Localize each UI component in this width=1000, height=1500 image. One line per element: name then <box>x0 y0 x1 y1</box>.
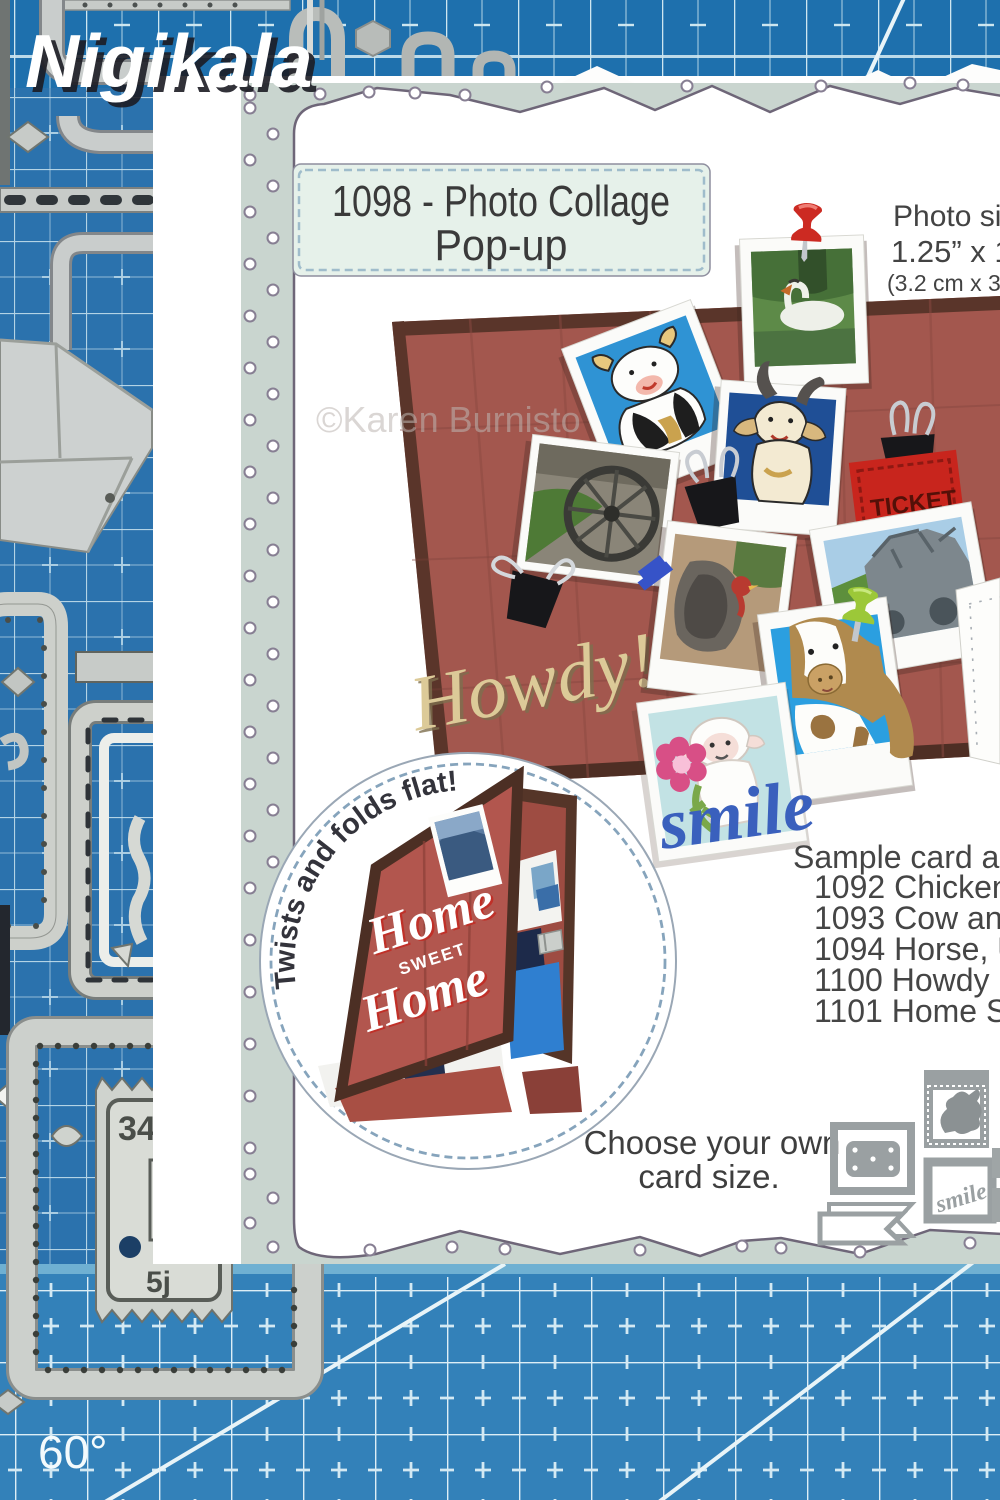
svg-text:5j: 5j <box>146 1266 171 1299</box>
svg-text:60°: 60° <box>38 1426 108 1478</box>
svg-text:1098 - Photo Collage: 1098 - Photo Collage <box>332 177 670 226</box>
svg-text:Nigikala: Nigikala <box>25 19 313 103</box>
svg-text:Choose your own: Choose your own <box>584 1124 841 1161</box>
svg-text:Photo siz: Photo siz <box>893 200 1000 233</box>
svg-text:Pop-up: Pop-up <box>435 221 568 270</box>
svg-text:1.25” x 1.2: 1.25” x 1.2 <box>891 234 1000 269</box>
svg-text:34: 34 <box>118 1110 156 1148</box>
svg-text:card size.: card size. <box>638 1158 779 1195</box>
svg-text:(3.2 cm x 3.2: (3.2 cm x 3.2 <box>887 270 1000 296</box>
svg-text:1101 Home Sweet: 1101 Home Sweet <box>814 993 1000 1029</box>
svg-text:©Karen Burnisto: ©Karen Burnisto <box>316 399 581 440</box>
